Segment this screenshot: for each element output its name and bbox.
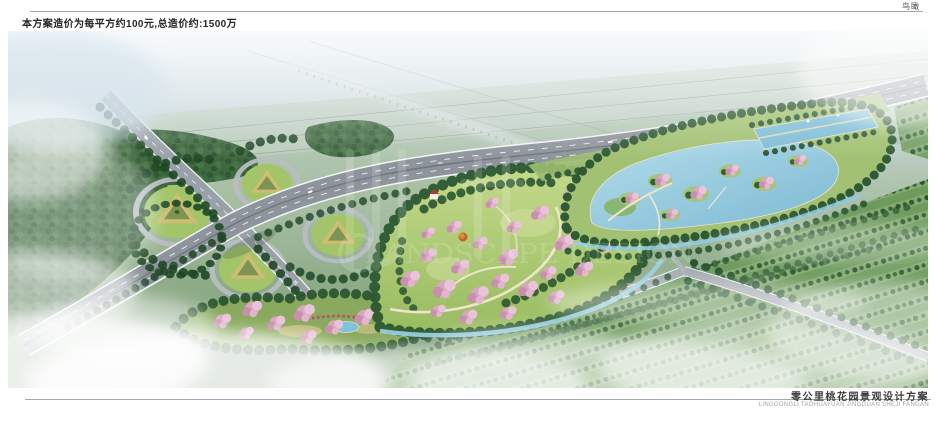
aerial-rendering-svg: LANDSCAPE DESIGN [8, 31, 928, 388]
project-title: 零公里桃花园景观设计方案 [791, 388, 929, 403]
watermark-text: LANDSCAPE DESIGN [364, 239, 694, 270]
view-label: 鸟瞰 [902, 1, 920, 12]
cost-note: 本方案造价为每平方约100元,总造价约:1500万 [22, 15, 237, 30]
top-rule [30, 11, 923, 12]
aerial-render: LANDSCAPE DESIGN [8, 31, 928, 388]
presentation-sheet: 鸟瞰 本方案造价为每平方约100元,总造价约:1500万 [0, 0, 936, 422]
project-title-pinyin: LINGGONGLI TAOHUAYUAN JINGGUAN SHEJI FAN… [759, 402, 929, 408]
